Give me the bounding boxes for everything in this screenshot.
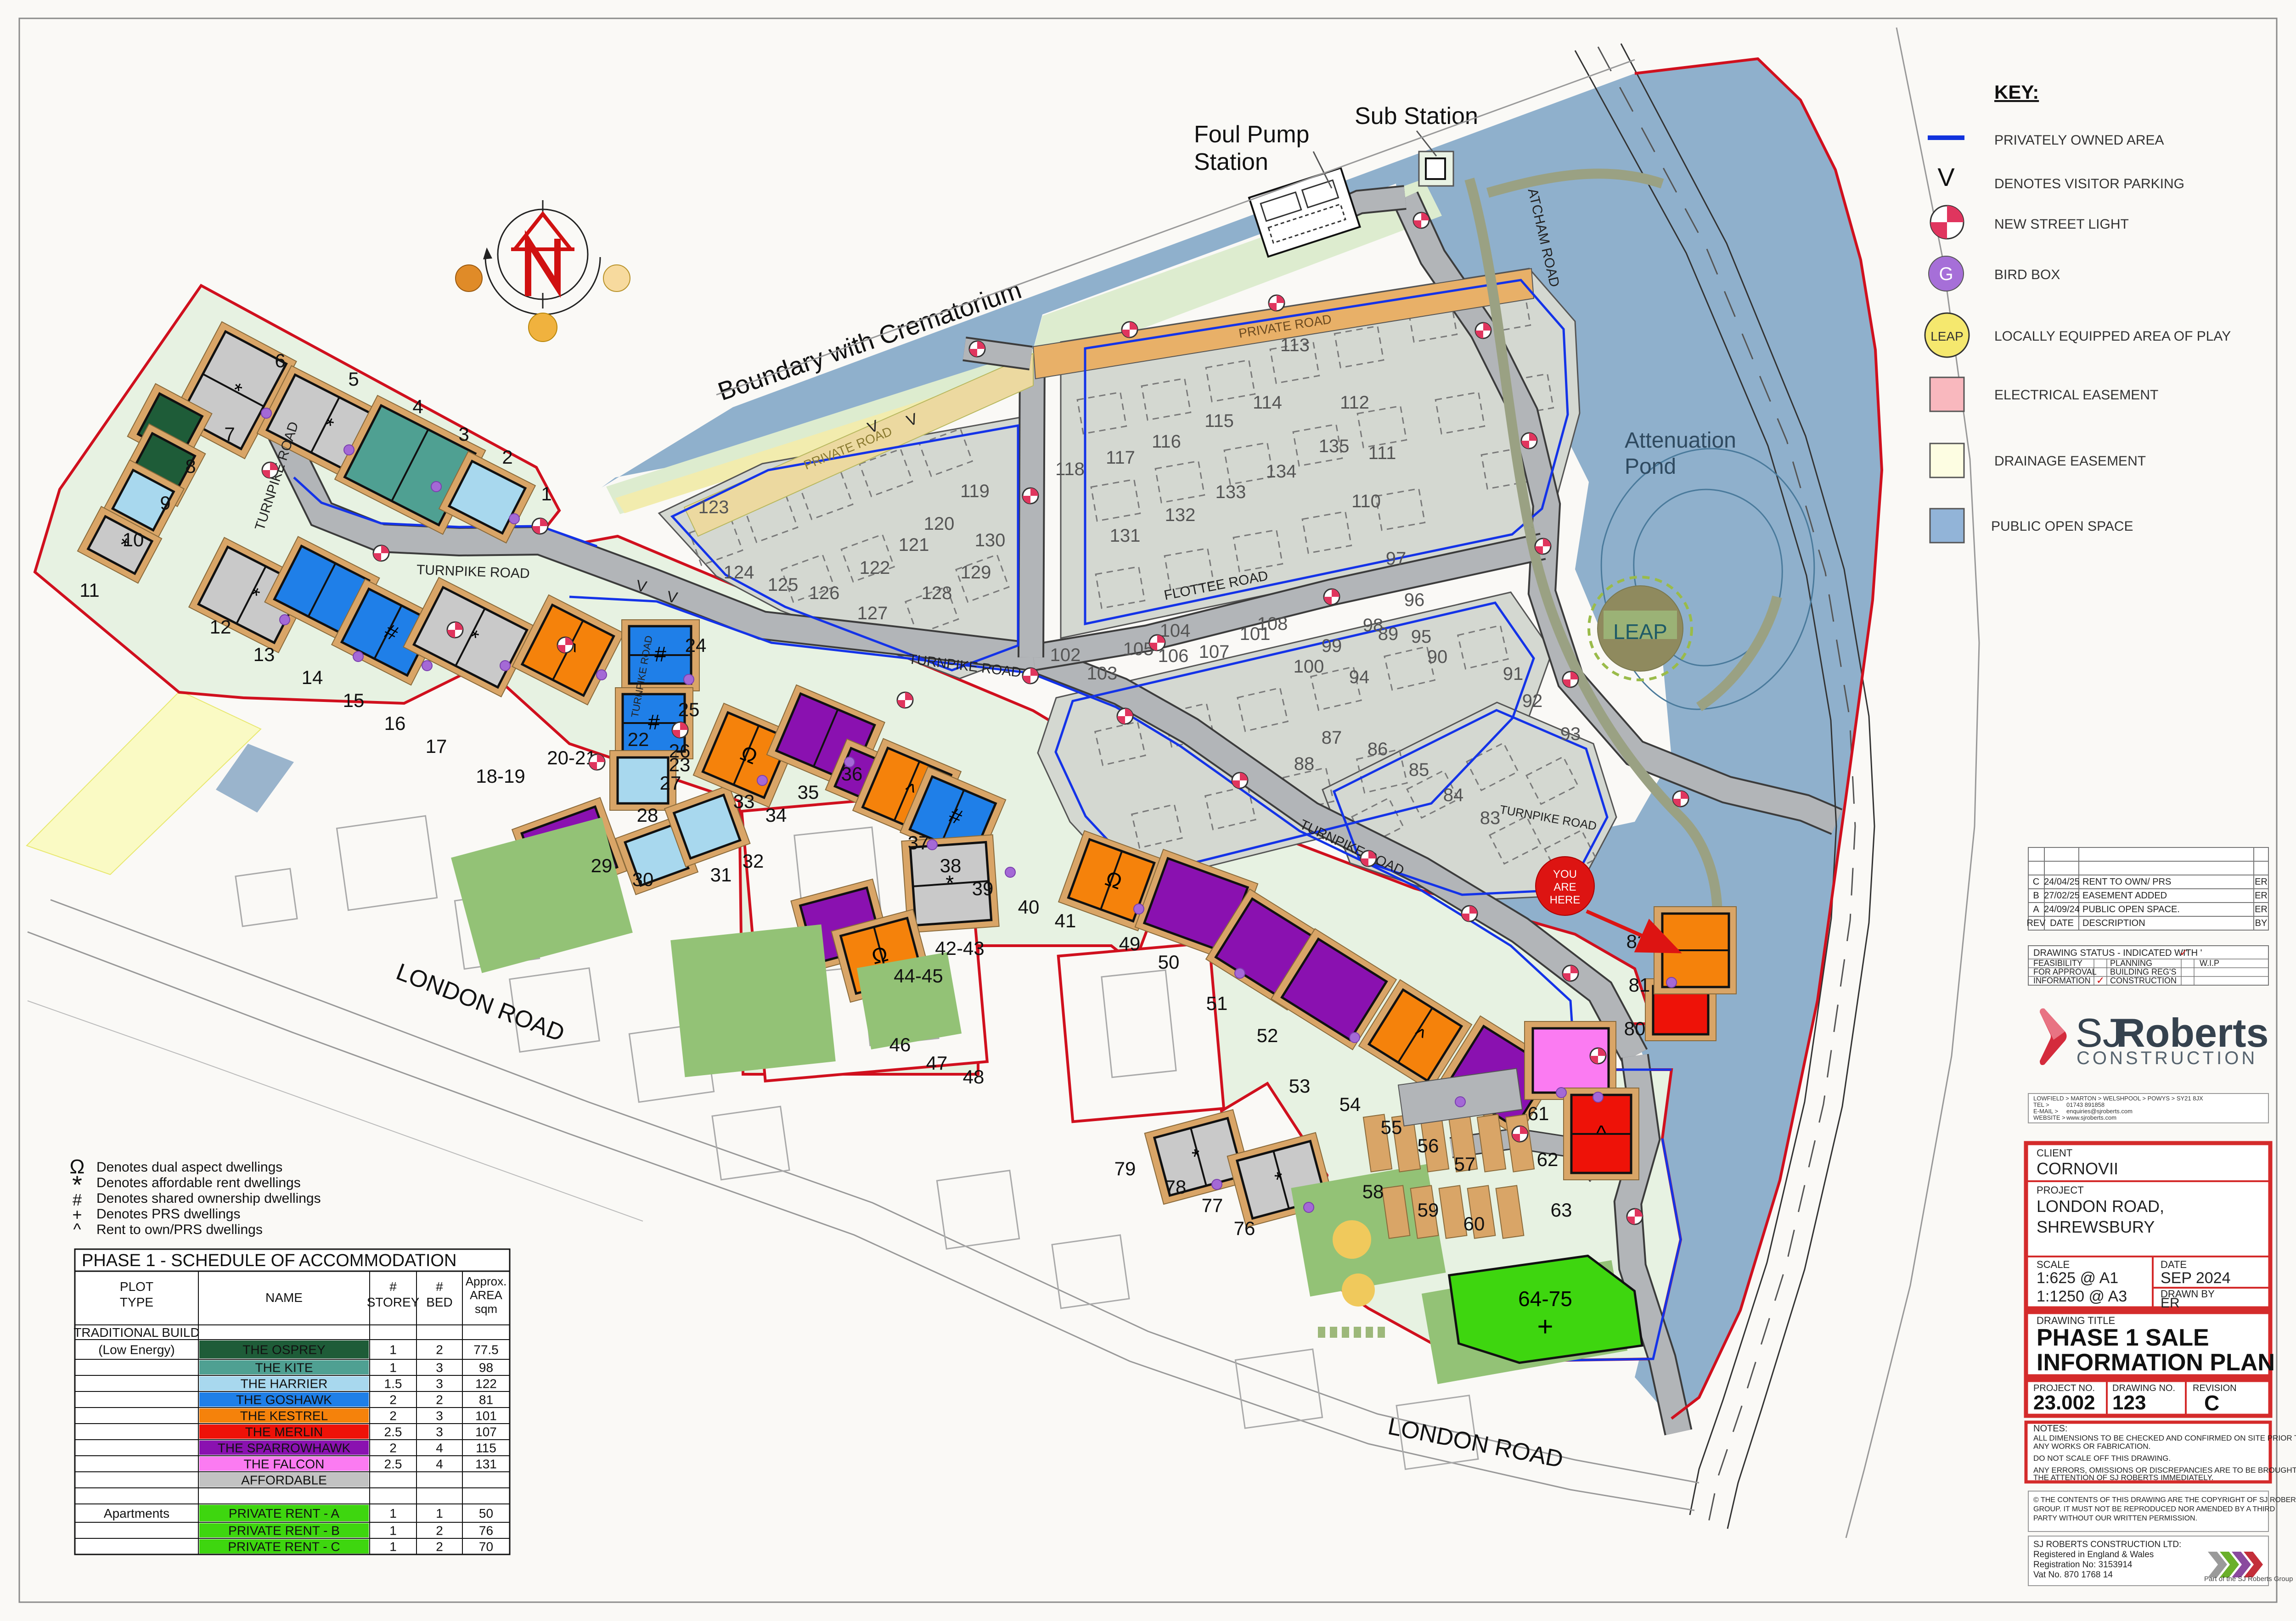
svg-text:26: 26 <box>669 740 691 762</box>
svg-text:80: 80 <box>1624 1018 1646 1039</box>
svg-text:83: 83 <box>1480 808 1501 828</box>
svg-text:CONSTRUCTION: CONSTRUCTION <box>2077 1048 2257 1068</box>
svg-text:SJ ROBERTS CONSTRUCTION LTD:: SJ ROBERTS CONSTRUCTION LTD: <box>2033 1540 2181 1549</box>
svg-text:NOTES:: NOTES: <box>2033 1424 2067 1434</box>
svg-text:122: 122 <box>860 558 890 578</box>
svg-text:35: 35 <box>798 781 819 803</box>
svg-text:sqm: sqm <box>475 1302 497 1316</box>
svg-text:48: 48 <box>963 1066 985 1088</box>
svg-text:127: 127 <box>857 603 888 623</box>
svg-text:24/09/24: 24/09/24 <box>2044 904 2080 914</box>
svg-text:28: 28 <box>637 804 658 826</box>
svg-text:17: 17 <box>426 735 447 757</box>
svg-text:Approx.: Approx. <box>466 1274 507 1288</box>
svg-text:112: 112 <box>1340 393 1369 413</box>
svg-text:129: 129 <box>961 562 991 583</box>
svg-text:PHASE 1 SALE: PHASE 1 SALE <box>2037 1324 2209 1351</box>
svg-text:118: 118 <box>1055 459 1085 479</box>
svg-text:29: 29 <box>591 855 613 876</box>
svg-text:SEP 2024: SEP 2024 <box>2161 1269 2231 1287</box>
svg-text:100: 100 <box>1294 656 1324 677</box>
svg-text:01743 891858: 01743 891858 <box>2066 1101 2105 1108</box>
svg-text:108: 108 <box>1257 614 1288 634</box>
svg-text:Pond: Pond <box>1625 454 1676 479</box>
svg-text:INFORMATION PLAN: INFORMATION PLAN <box>2037 1349 2275 1376</box>
svg-text:KEY:: KEY: <box>1994 81 2039 103</box>
svg-text:77.5: 77.5 <box>473 1343 499 1357</box>
svg-text:14: 14 <box>302 667 323 688</box>
svg-text:3: 3 <box>436 1425 443 1439</box>
svg-text:1: 1 <box>436 1506 443 1520</box>
svg-text:CONSTRUCTION: CONSTRUCTION <box>2110 976 2177 985</box>
svg-text:124: 124 <box>724 562 754 583</box>
svg-text:107: 107 <box>1199 642 1230 662</box>
svg-text:51: 51 <box>1206 993 1228 1014</box>
svg-text:THE KITE: THE KITE <box>255 1361 313 1375</box>
svg-text:INFORMATION: INFORMATION <box>2033 976 2091 985</box>
svg-text:PUBLIC OPEN SPACE: PUBLIC OPEN SPACE <box>1991 519 2133 534</box>
svg-text:59: 59 <box>1418 1199 1439 1221</box>
svg-text:THE GOSHAWK: THE GOSHAWK <box>236 1393 332 1407</box>
svg-text:81: 81 <box>479 1393 493 1407</box>
svg-text:TRADITIONAL BUILD: TRADITIONAL BUILD <box>73 1325 199 1340</box>
svg-text:133: 133 <box>1216 482 1246 502</box>
svg-text:© THE CONTENTS OF THIS DRAWING: © THE CONTENTS OF THIS DRAWING ARE THE C… <box>2033 1496 2296 1504</box>
svg-text:22: 22 <box>628 729 649 750</box>
svg-text:PARTY WITHOUT OUR WRITTEN PERM: PARTY WITHOUT OUR WRITTEN PERMISSION. <box>2033 1514 2197 1522</box>
svg-text:44-45: 44-45 <box>894 965 943 987</box>
svg-text:PRIVATE RENT - C: PRIVATE RENT - C <box>228 1540 340 1554</box>
svg-text:1: 1 <box>389 1524 397 1538</box>
svg-text:^: ^ <box>1596 1121 1606 1145</box>
svg-text:52: 52 <box>1257 1025 1278 1046</box>
svg-text:98: 98 <box>479 1361 493 1375</box>
svg-text:30: 30 <box>632 869 654 890</box>
svg-text:TYPE: TYPE <box>120 1295 153 1309</box>
svg-text:116: 116 <box>1152 432 1181 452</box>
svg-text:1:1250 @ A3: 1:1250 @ A3 <box>2037 1288 2127 1305</box>
svg-text:1:625 @ A1: 1:625 @ A1 <box>2037 1269 2118 1287</box>
svg-text:41: 41 <box>1055 910 1076 931</box>
svg-text:2: 2 <box>389 1441 397 1455</box>
svg-text:Registered in England & Wales: Registered in England & Wales <box>2033 1550 2154 1559</box>
svg-text:3: 3 <box>436 1409 443 1423</box>
svg-text:PROJECT: PROJECT <box>2037 1184 2084 1196</box>
svg-text:31: 31 <box>710 864 732 886</box>
svg-text:Denotes PRS dwellings: Denotes PRS dwellings <box>96 1206 241 1222</box>
svg-text:CLIENT: CLIENT <box>2037 1147 2072 1159</box>
svg-text:PHASE 1 - SCHEDULE OF ACCOMMOD: PHASE 1 - SCHEDULE OF ACCOMMODATION <box>82 1251 456 1270</box>
svg-text:1: 1 <box>389 1540 397 1554</box>
svg-text:11: 11 <box>79 579 100 601</box>
svg-text:5: 5 <box>348 368 359 390</box>
svg-text:76: 76 <box>1234 1217 1255 1239</box>
svg-text:135: 135 <box>1319 436 1350 456</box>
svg-text:Vat No. 870 1768 14: Vat No. 870 1768 14 <box>2033 1570 2113 1580</box>
svg-text:131: 131 <box>475 1457 497 1471</box>
svg-text:47: 47 <box>926 1052 948 1074</box>
svg-text:128: 128 <box>922 583 952 603</box>
svg-text:38: 38 <box>940 855 962 876</box>
svg-text:126: 126 <box>809 583 840 603</box>
svg-text:3: 3 <box>436 1377 443 1391</box>
svg-text:C: C <box>2033 877 2039 887</box>
svg-text:24: 24 <box>685 634 707 656</box>
svg-text:60: 60 <box>1463 1213 1485 1234</box>
svg-text:(Low Energy): (Low Energy) <box>98 1343 175 1357</box>
svg-text:3: 3 <box>436 1361 443 1375</box>
svg-text:C: C <box>2204 1391 2219 1415</box>
svg-text:BY: BY <box>2255 918 2268 928</box>
svg-text:4: 4 <box>412 396 423 417</box>
svg-text:RENT TO OWN/ PRS: RENT TO OWN/ PRS <box>2082 877 2171 887</box>
svg-text:LOCALLY EQUIPPED AREA OF PLAY: LOCALLY EQUIPPED AREA OF PLAY <box>1994 329 2231 344</box>
svg-text:1: 1 <box>541 483 551 505</box>
svg-text:HERE: HERE <box>1550 894 1581 906</box>
svg-text:www.sjroberts.com: www.sjroberts.com <box>2066 1114 2116 1121</box>
svg-text:95: 95 <box>1411 627 1432 647</box>
svg-text:TEL >: TEL > <box>2033 1101 2049 1108</box>
svg-text:115: 115 <box>1204 411 1234 431</box>
svg-text:115: 115 <box>476 1441 496 1455</box>
svg-text:40: 40 <box>1018 896 1040 918</box>
svg-text:57: 57 <box>1454 1153 1476 1175</box>
svg-text:125: 125 <box>768 575 799 595</box>
svg-text:97: 97 <box>1386 549 1407 569</box>
svg-text:DESCRIPTION: DESCRIPTION <box>2082 918 2145 928</box>
svg-text:107: 107 <box>475 1425 497 1439</box>
svg-text:#: # <box>654 642 666 666</box>
svg-text:YOU: YOU <box>1553 868 1577 881</box>
svg-text:DATE: DATE <box>2050 918 2074 928</box>
svg-text:#: # <box>389 1279 397 1294</box>
svg-text:2: 2 <box>436 1540 443 1554</box>
svg-text:DO NOT SCALE OFF THIS DRAWING.: DO NOT SCALE OFF THIS DRAWING. <box>2033 1454 2171 1463</box>
svg-text:G: G <box>1939 264 1953 284</box>
svg-text:77: 77 <box>1202 1195 1223 1216</box>
svg-text:DRAINAGE EASEMENT: DRAINAGE EASEMENT <box>1994 454 2146 469</box>
svg-text:103: 103 <box>1087 663 1118 684</box>
svg-text:86: 86 <box>1367 739 1388 759</box>
svg-text:91: 91 <box>1503 664 1524 684</box>
svg-text:119: 119 <box>960 481 990 501</box>
svg-text:50: 50 <box>479 1506 493 1520</box>
svg-text:120: 120 <box>924 514 955 534</box>
svg-text:15: 15 <box>343 690 365 711</box>
svg-text:SHREWSBURY: SHREWSBURY <box>2037 1217 2155 1236</box>
svg-text:V: V <box>1937 163 1955 191</box>
svg-text:WEBSITE >: WEBSITE > <box>2033 1114 2065 1121</box>
svg-text:B: B <box>2033 891 2039 901</box>
svg-text:61: 61 <box>1528 1103 1549 1124</box>
svg-text:134: 134 <box>1266 461 1297 482</box>
svg-text:37: 37 <box>908 832 929 853</box>
svg-text:54: 54 <box>1339 1094 1361 1115</box>
svg-text:BUILDING REG'S: BUILDING REG'S <box>2110 967 2176 976</box>
svg-text:DENOTES VISITOR PARKING: DENOTES VISITOR PARKING <box>1994 176 2184 191</box>
svg-text:Attenuation: Attenuation <box>1625 428 1736 453</box>
svg-text:': ' <box>2186 948 2188 958</box>
svg-text:STOREY: STOREY <box>367 1295 420 1309</box>
svg-text:GROUP. IT MUST NOT BE REPRODUC: GROUP. IT MUST NOT BE REPRODUCED NOR AME… <box>2033 1505 2275 1513</box>
svg-text:LOWFIELD > MARTON > WELSHPOOL: LOWFIELD > MARTON > WELSHPOOL > POWYS > … <box>2033 1095 2203 1102</box>
svg-text:8: 8 <box>185 455 196 477</box>
svg-text:121: 121 <box>899 535 929 555</box>
svg-text:117: 117 <box>1106 448 1135 468</box>
svg-text:34: 34 <box>765 804 787 826</box>
svg-text:+: + <box>1537 1311 1553 1342</box>
svg-text:A: A <box>2033 904 2039 914</box>
svg-text:13: 13 <box>253 644 275 665</box>
svg-text:PRIVATE RENT - A: PRIVATE RENT - A <box>229 1506 339 1520</box>
svg-text:104: 104 <box>1160 621 1191 641</box>
svg-text:88: 88 <box>1294 754 1315 774</box>
svg-text:THE MERLIN: THE MERLIN <box>245 1425 323 1439</box>
svg-text:1: 1 <box>389 1506 397 1520</box>
svg-text:THE ATTENTION OF SJ ROBERTS IM: THE ATTENTION OF SJ ROBERTS IMMEDIATELY. <box>2033 1473 2213 1482</box>
svg-text:NEW STREET LIGHT: NEW STREET LIGHT <box>1994 217 2129 232</box>
svg-text:Foul Pump: Foul Pump <box>1194 121 1309 148</box>
svg-text:53: 53 <box>1289 1075 1311 1097</box>
svg-text:110: 110 <box>1351 491 1381 511</box>
svg-text:PUBLIC OPEN SPACE.: PUBLIC OPEN SPACE. <box>2082 904 2180 914</box>
svg-text:AREA: AREA <box>470 1288 502 1302</box>
svg-text:#: # <box>436 1279 443 1294</box>
svg-text:1: 1 <box>389 1343 397 1357</box>
svg-text:113: 113 <box>1280 335 1310 355</box>
svg-text:Sub Station: Sub Station <box>1355 103 1478 129</box>
svg-text:12: 12 <box>210 616 231 638</box>
svg-text:25: 25 <box>678 699 700 720</box>
svg-text:123: 123 <box>2112 1391 2146 1414</box>
svg-text:55: 55 <box>1381 1116 1402 1138</box>
svg-text:46: 46 <box>889 1034 911 1055</box>
svg-text:Denotes shared ownership dwell: Denotes shared ownership dwellings <box>96 1191 321 1206</box>
svg-text:79: 79 <box>1114 1158 1136 1179</box>
svg-text:1: 1 <box>389 1361 397 1375</box>
svg-text:Rent to own/PRS dwellings: Rent to own/PRS dwellings <box>96 1222 263 1237</box>
svg-text:101: 101 <box>475 1409 497 1423</box>
svg-text:2.5: 2.5 <box>384 1425 402 1439</box>
svg-text:ER: ER <box>2255 891 2268 901</box>
svg-text:42-43: 42-43 <box>935 937 984 959</box>
svg-text:W.I.P: W.I.P <box>2200 959 2219 968</box>
svg-text:89: 89 <box>1378 624 1399 644</box>
svg-text:2: 2 <box>436 1343 443 1357</box>
svg-text:122: 122 <box>475 1377 497 1391</box>
svg-text:23.002: 23.002 <box>2033 1391 2095 1414</box>
svg-text:ER: ER <box>2161 1296 2180 1311</box>
svg-text:NAME: NAME <box>265 1290 303 1305</box>
svg-text:2: 2 <box>502 446 512 468</box>
svg-text:99: 99 <box>1322 636 1342 656</box>
svg-text:2: 2 <box>389 1393 397 1407</box>
svg-text:REV: REV <box>2026 918 2046 928</box>
svg-text:131: 131 <box>1110 526 1141 546</box>
svg-text:20-21: 20-21 <box>547 747 596 768</box>
svg-text:EASEMENT ADDED: EASEMENT ADDED <box>2082 891 2167 901</box>
svg-text:70: 70 <box>479 1540 493 1554</box>
svg-text:ANY WORKS OR FABRICATION.: ANY WORKS OR FABRICATION. <box>2033 1442 2150 1451</box>
svg-text:49: 49 <box>1119 933 1141 954</box>
svg-text:THE HARRIER: THE HARRIER <box>241 1377 328 1391</box>
svg-text:81: 81 <box>1629 974 1650 996</box>
svg-text:Part of the SJ Roberts Group: Part of the SJ Roberts Group <box>2204 1575 2293 1583</box>
svg-text:✓: ✓ <box>2096 975 2105 986</box>
svg-text:PLOT: PLOT <box>120 1279 153 1294</box>
svg-text:Registration No: 3153914: Registration No: 3153914 <box>2033 1560 2133 1570</box>
svg-text:LEAP: LEAP <box>1613 620 1667 644</box>
svg-text:96: 96 <box>1404 590 1425 610</box>
svg-text:3: 3 <box>458 423 469 445</box>
svg-text:130: 130 <box>975 530 1006 550</box>
svg-text:AFFORDABLE: AFFORDABLE <box>241 1473 327 1487</box>
svg-text:16: 16 <box>384 712 406 734</box>
svg-text:enquiries@sjroberts.com: enquiries@sjroberts.com <box>2066 1108 2133 1115</box>
svg-text:#: # <box>648 710 660 734</box>
svg-text:84: 84 <box>1443 785 1464 805</box>
svg-text:THE SPARROWHAWK: THE SPARROWHAWK <box>218 1441 351 1455</box>
svg-text:Denotes dual aspect dwellings: Denotes dual aspect dwellings <box>96 1160 282 1175</box>
svg-text:BED: BED <box>426 1295 453 1309</box>
svg-text:62: 62 <box>1537 1149 1559 1170</box>
svg-text:PLANNING: PLANNING <box>2110 959 2152 968</box>
svg-text:2.5: 2.5 <box>384 1457 402 1471</box>
svg-text:93: 93 <box>1560 724 1581 744</box>
svg-text:Apartments: Apartments <box>104 1506 169 1520</box>
svg-text:111: 111 <box>1368 443 1396 463</box>
svg-text:THE KESTREL: THE KESTREL <box>240 1409 328 1423</box>
svg-text:Station: Station <box>1194 149 1268 175</box>
svg-text:ELECTRICAL EASEMENT: ELECTRICAL EASEMENT <box>1994 387 2158 403</box>
svg-text:39: 39 <box>972 878 994 899</box>
svg-text:76: 76 <box>479 1524 493 1538</box>
svg-text:132: 132 <box>1165 505 1196 525</box>
svg-text:LONDON ROAD,: LONDON ROAD, <box>2037 1197 2164 1216</box>
svg-text:THE FALCON: THE FALCON <box>244 1457 325 1471</box>
svg-text:4: 4 <box>436 1441 443 1455</box>
svg-text:2: 2 <box>436 1524 443 1538</box>
svg-text:DATE: DATE <box>2161 1259 2187 1270</box>
svg-text:33: 33 <box>733 791 755 812</box>
svg-text:102: 102 <box>1050 645 1081 665</box>
svg-text:CORNOVII: CORNOVII <box>2037 1159 2118 1178</box>
svg-text:7: 7 <box>224 423 235 445</box>
svg-text:10: 10 <box>123 529 144 550</box>
svg-text:24/04/25: 24/04/25 <box>2044 877 2080 887</box>
svg-text:6: 6 <box>275 350 285 371</box>
svg-text:58: 58 <box>1362 1181 1384 1202</box>
svg-text:94: 94 <box>1349 667 1370 687</box>
svg-text:1.5: 1.5 <box>384 1377 402 1391</box>
svg-text:18-19: 18-19 <box>476 765 525 787</box>
svg-text:63: 63 <box>1551 1199 1572 1221</box>
svg-text:THE OSPREY: THE OSPREY <box>242 1343 326 1357</box>
svg-text:DRAWING STATUS - INDICATED WIT: DRAWING STATUS - INDICATED WITH ' <box>2033 948 2202 958</box>
svg-text:32: 32 <box>743 850 764 872</box>
svg-text:9: 9 <box>160 492 170 514</box>
svg-text:FEASIBILITY: FEASIBILITY <box>2033 959 2082 968</box>
svg-text:85: 85 <box>1409 760 1429 780</box>
svg-text:PRIVATE RENT - B: PRIVATE RENT - B <box>228 1524 340 1538</box>
svg-text:64-75: 64-75 <box>1518 1287 1572 1311</box>
svg-text:114: 114 <box>1253 393 1282 413</box>
svg-text:123: 123 <box>698 497 729 517</box>
svg-text:SCALE: SCALE <box>2037 1259 2070 1270</box>
svg-text:FOR APPROVAL: FOR APPROVAL <box>2033 967 2097 976</box>
svg-text:90: 90 <box>1427 647 1448 667</box>
svg-text:PRIVATELY OWNED AREA: PRIVATELY OWNED AREA <box>1994 133 2164 148</box>
svg-text:ER: ER <box>2255 904 2268 914</box>
svg-text:2: 2 <box>389 1409 397 1423</box>
svg-text:92: 92 <box>1522 691 1543 711</box>
svg-text:27/02/25: 27/02/25 <box>2044 891 2080 901</box>
svg-text:BIRD BOX: BIRD BOX <box>1994 267 2060 282</box>
svg-text:ER: ER <box>2255 877 2268 887</box>
svg-text:ALL DIMENSIONS TO BE CHECKED A: ALL DIMENSIONS TO BE CHECKED AND CONFIRM… <box>2033 1434 2296 1442</box>
svg-text:4: 4 <box>436 1457 443 1471</box>
svg-text:56: 56 <box>1418 1135 1439 1156</box>
svg-text:Denotes affordable rent dwelli: Denotes affordable rent dwellings <box>96 1175 301 1190</box>
svg-text:ARE: ARE <box>1553 881 1576 893</box>
svg-text:50: 50 <box>1158 951 1180 973</box>
svg-text:LEAP: LEAP <box>1930 329 1964 343</box>
svg-text:78: 78 <box>1165 1176 1187 1198</box>
svg-text:27: 27 <box>660 772 681 794</box>
svg-text:2: 2 <box>436 1393 443 1407</box>
svg-text:87: 87 <box>1322 728 1342 748</box>
svg-text:E-MAIL >: E-MAIL > <box>2033 1108 2058 1115</box>
svg-text:^: ^ <box>73 1220 81 1239</box>
